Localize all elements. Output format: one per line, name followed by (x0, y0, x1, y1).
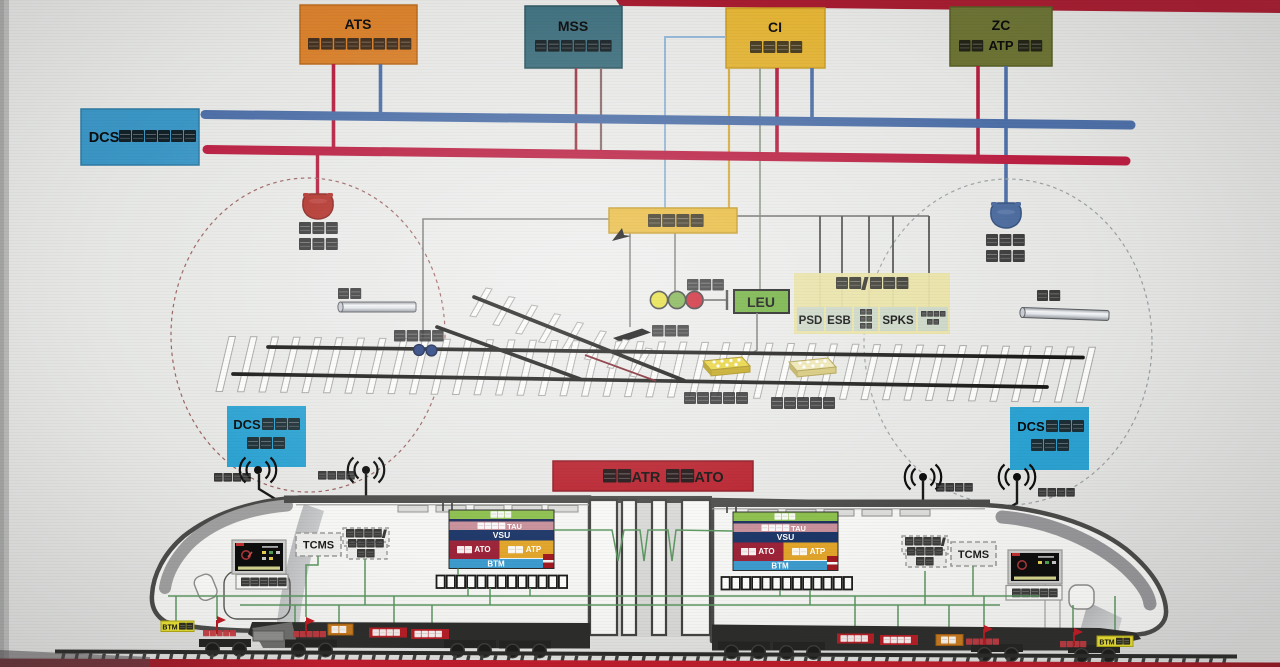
svg-text:ATO: ATO (758, 547, 774, 556)
svg-text:DCS: DCS (233, 417, 261, 432)
svg-text:ATP: ATP (526, 545, 542, 554)
svg-text:DCS: DCS (89, 130, 120, 146)
svg-text:CI: CI (768, 19, 782, 35)
svg-text:ZC: ZC (992, 17, 1011, 33)
svg-text:TCMS: TCMS (303, 540, 334, 552)
svg-text:MSS: MSS (558, 18, 588, 34)
svg-text:ATO: ATO (474, 545, 490, 554)
svg-text:ATP: ATP (810, 547, 826, 556)
svg-text:ESB: ESB (827, 315, 851, 327)
svg-text:BTM: BTM (162, 625, 177, 632)
svg-text:ATR: ATR (632, 470, 661, 486)
svg-text:BTM: BTM (771, 562, 789, 571)
svg-text:SPKS: SPKS (882, 315, 914, 327)
svg-text:BTM: BTM (1099, 640, 1114, 647)
svg-text:LEU: LEU (747, 294, 775, 310)
svg-text:DCS: DCS (1017, 419, 1045, 434)
svg-text:TCMS: TCMS (958, 549, 989, 561)
svg-text:ATO: ATO (694, 470, 723, 486)
svg-text:VSU: VSU (493, 530, 510, 540)
svg-text:PSD: PSD (799, 315, 823, 327)
svg-text:ATP: ATP (988, 38, 1013, 53)
svg-text:VSU: VSU (777, 532, 794, 542)
svg-text:ATS: ATS (345, 16, 372, 32)
svg-text:BTM: BTM (487, 560, 505, 569)
